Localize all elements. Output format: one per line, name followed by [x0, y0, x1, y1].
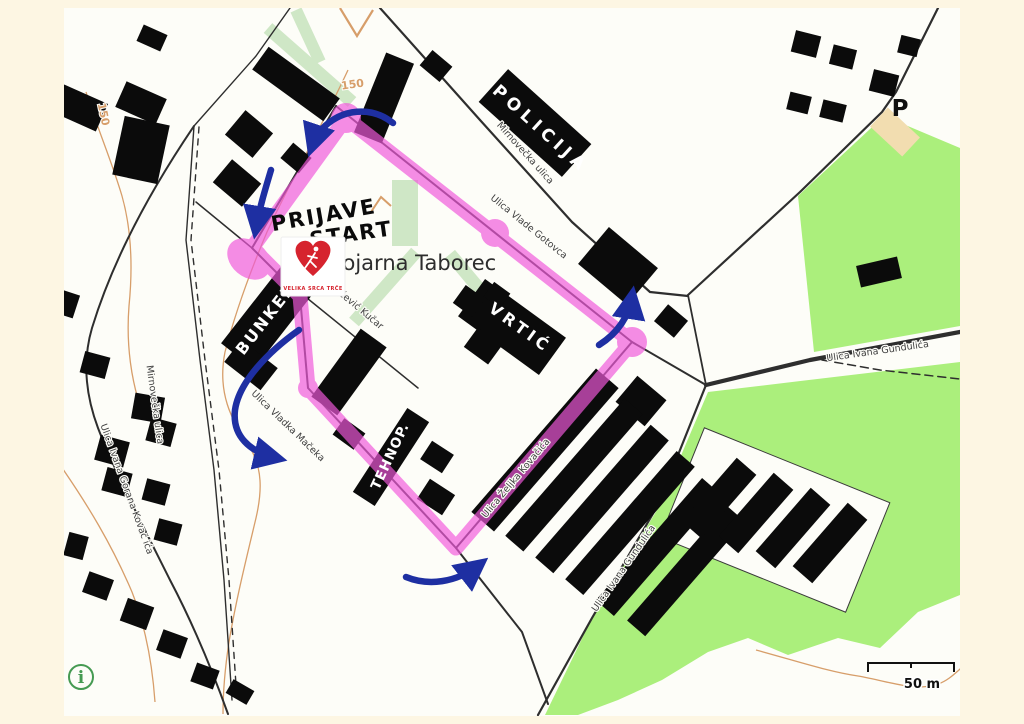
route-blob: [298, 378, 318, 398]
map-svg: Mirnovečka ulica Ulica Vlade Gotovca Dab…: [0, 0, 1024, 724]
logo-card: VELIKA SRCA TRČE: [281, 237, 345, 296]
route-blob: [617, 327, 647, 357]
info-glyph: i: [78, 668, 85, 688]
route-blob: [481, 219, 509, 247]
parking-label: P: [892, 96, 909, 122]
logo-text: VELIKA SRCA TRČE: [283, 285, 342, 292]
place-label: Vojarna Taborec: [330, 251, 496, 275]
scale-label: 50 m: [904, 677, 940, 692]
